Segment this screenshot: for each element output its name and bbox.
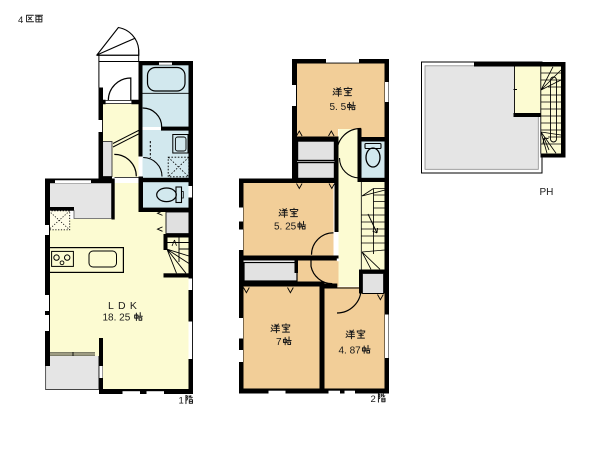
svg-text:LDK: LDK: [108, 300, 141, 312]
svg-text:18. 25: 18. 25: [103, 313, 131, 324]
svg-text:4: 4: [18, 15, 23, 26]
svg-text:1: 1: [179, 396, 184, 407]
svg-text:5. 5: 5. 5: [330, 102, 347, 113]
svg-text:7: 7: [276, 337, 282, 348]
svg-text:4. 87: 4. 87: [339, 346, 362, 357]
svg-text:2: 2: [371, 394, 376, 405]
svg-text:5. 25: 5. 25: [274, 222, 297, 233]
svg-text:PH: PH: [540, 187, 554, 198]
